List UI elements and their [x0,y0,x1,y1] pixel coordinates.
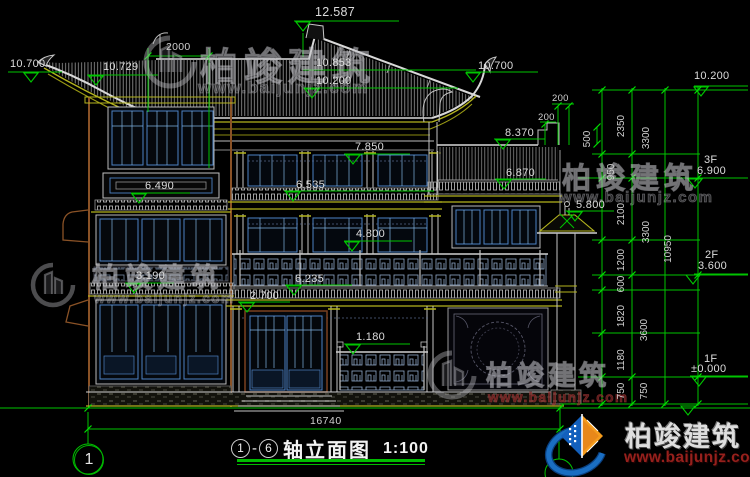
dim-2350: 2350 [615,104,629,148]
dim-1820: 1820 [615,294,629,338]
elev-label-7850: 7.850 [355,141,384,153]
right-top-elevation: 10.200 [694,70,729,82]
axis-bubble-1: 1 [231,439,250,458]
elev-label-1180: 1.180 [356,331,385,343]
floor-1f-value: ±0.000 [691,363,726,375]
elev-label-5800: 5.800 [576,199,605,211]
elev-label-ridge: 12.587 [315,6,355,18]
title-scale: 1:100 [383,440,429,458]
axis-bubble-6: 6 [259,439,278,458]
dim-3300-a: 3300 [640,116,654,160]
elev-label-8370: 8.370 [505,127,534,139]
dim-3300-b: 3300 [640,210,654,254]
dim-2100: 2100 [615,192,629,236]
elev-label-10853: 10.853 [316,57,351,69]
elev-label-6535: 6.535 [296,179,325,191]
floor-2f-value: 3.600 [698,260,727,272]
main-roof [38,24,496,150]
brand-logo-url: www.baijunjz.com [624,449,750,467]
elev-label-eave-r: 10.700 [478,60,513,72]
elev-label-4800: 4.800 [356,228,385,240]
third-floor [228,151,442,209]
dim-10950: 10950 [662,227,676,271]
title-underline-thin [237,464,425,465]
dim-950: 950 [605,150,619,194]
elev-label-6870: 6.870 [506,167,535,179]
brand-logo: 柏竣建筑 www.baijunjz.com [538,406,750,477]
elev-label-6235: 6.235 [295,273,324,285]
dim-500: 500 [581,117,595,161]
brand-logo-icon [538,406,624,477]
dim-3600: 3600 [638,308,652,352]
cad-elevation-screenshot: 12.587 10.700 10.729 10.853 10.200 10.70… [0,0,750,477]
elev-label-eave-l2: 10.729 [103,61,138,73]
elev-label-10200: 10.200 [316,75,351,87]
elev-label-eave-l1: 10.700 [10,58,45,70]
dim-2000: 2000 [166,41,191,53]
dim-200-a: 200 [552,93,569,105]
elev-label-3190: 3.190 [136,270,165,282]
dim-200-b: 200 [538,112,555,124]
title-underline-thick [237,459,425,462]
elev-label-2700: 2.700 [250,290,279,302]
elev-label-6490: 6.490 [145,180,174,192]
dim-16740: 16740 [310,415,342,427]
axis-marker-1: 1 [74,445,104,475]
floor-3f-value: 6.900 [697,165,726,177]
title-dash: - [252,440,257,457]
